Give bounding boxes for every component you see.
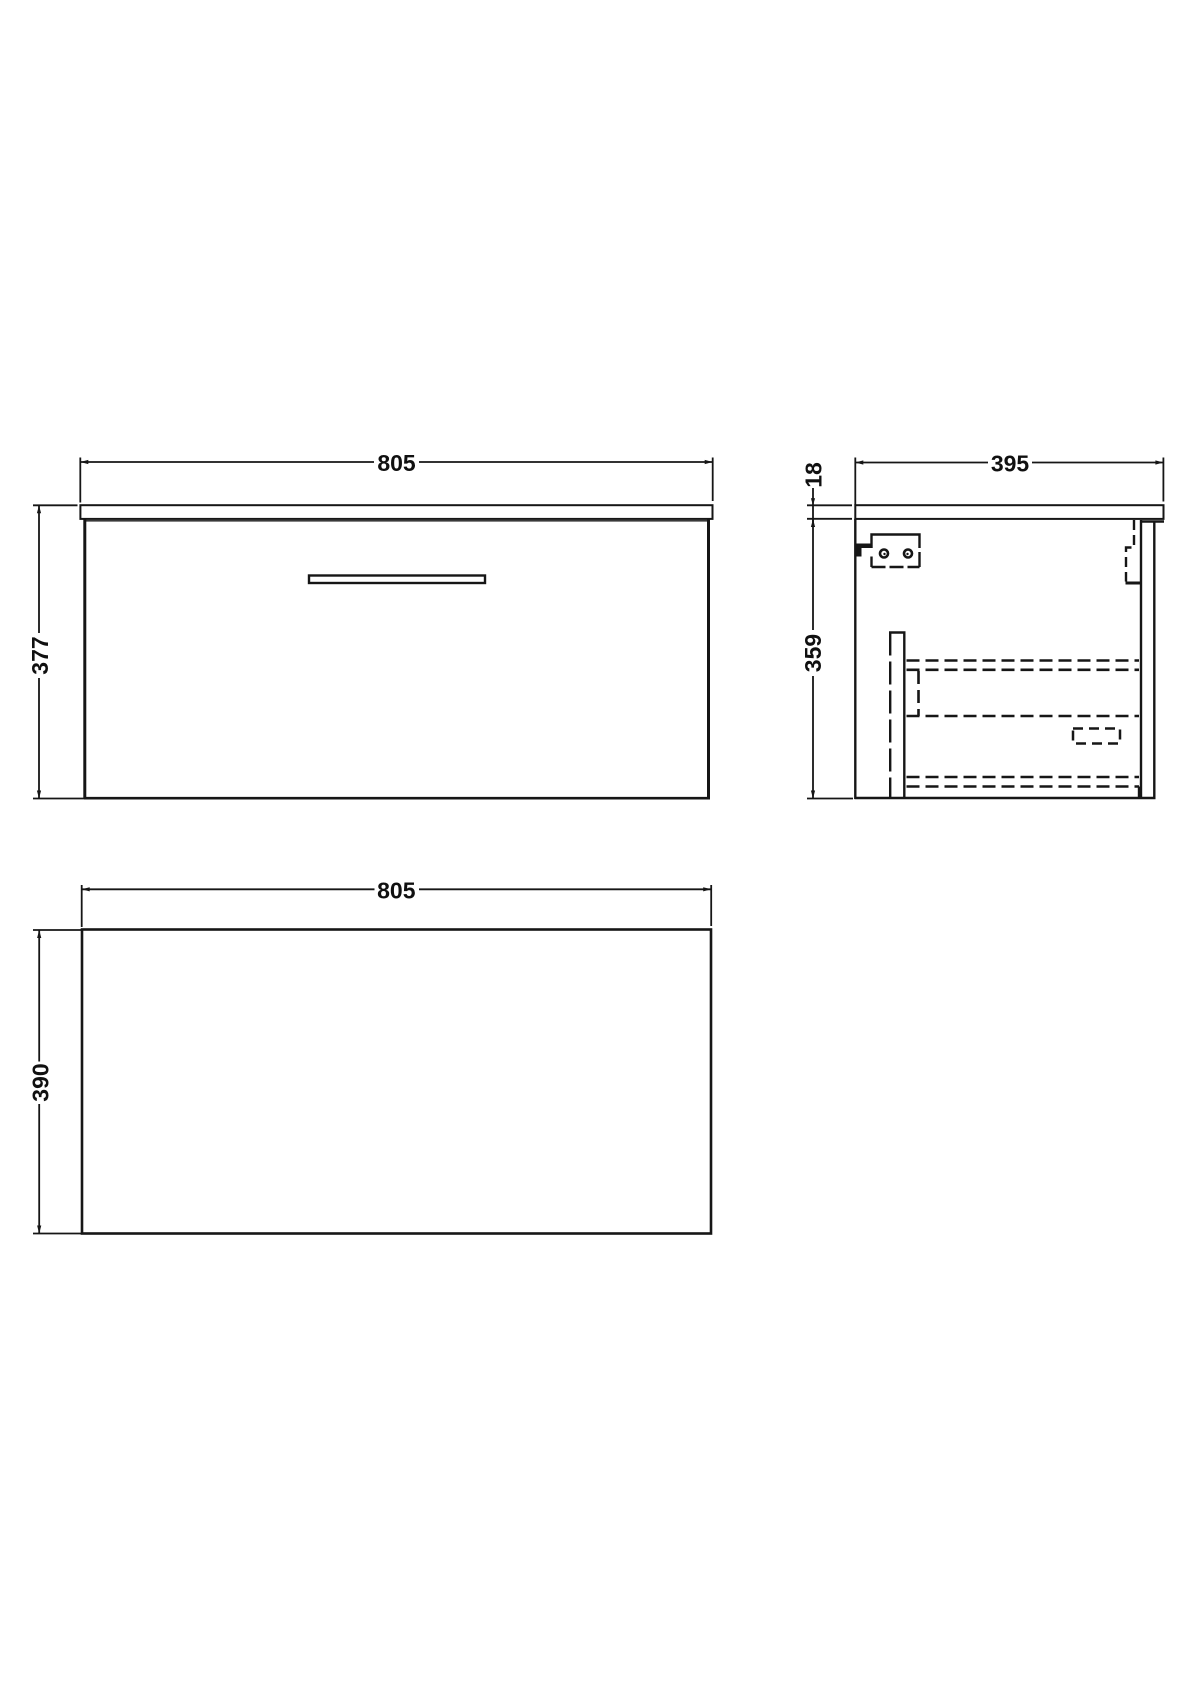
- svg-text:390: 390: [28, 1063, 54, 1101]
- svg-text:805: 805: [377, 450, 416, 476]
- svg-text:395: 395: [991, 451, 1030, 477]
- svg-text:805: 805: [377, 877, 416, 903]
- svg-text:359: 359: [800, 634, 826, 672]
- svg-text:18: 18: [801, 462, 827, 488]
- svg-text:377: 377: [27, 636, 53, 674]
